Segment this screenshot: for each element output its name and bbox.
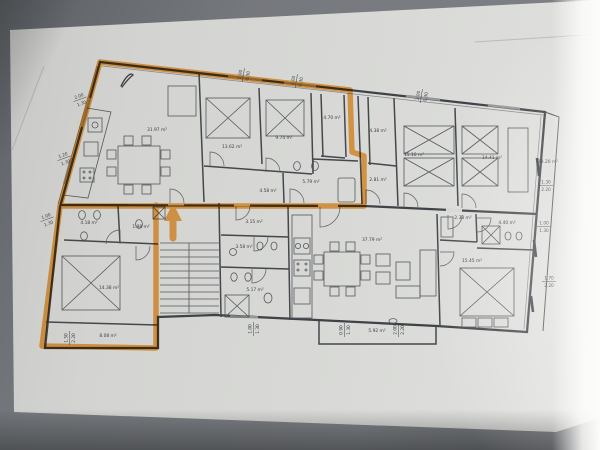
- label-room-438: 4.38 m²: [369, 128, 386, 134]
- svg-text:2.00: 2.00: [392, 325, 398, 335]
- svg-text:2.20: 2.20: [544, 283, 554, 289]
- dim-bottom-3: 0.901.30: [338, 323, 352, 337]
- label-bedroom-a: 13.62 m²: [222, 144, 242, 150]
- dim-top-3: 2.000.30: [414, 88, 430, 104]
- svg-text:1.30: 1.30: [255, 324, 261, 334]
- label-living-main: 37.79 m²: [362, 237, 382, 243]
- svg-text:1.30: 1.30: [539, 228, 549, 234]
- sofa: [420, 250, 436, 296]
- bath-fixtures: [79, 162, 522, 324]
- svg-text:1.00: 1.00: [247, 324, 253, 334]
- label-bath-440: 4.40 m²: [498, 220, 515, 226]
- svg-text:1.30: 1.30: [346, 325, 352, 335]
- label-closet-238: 2.38 m²: [454, 215, 471, 221]
- dim-bottom-1: 1.502.20: [63, 331, 77, 345]
- svg-text:2.20: 2.20: [400, 325, 406, 335]
- svg-text:0.30: 0.30: [422, 91, 430, 102]
- label-wc-358: 3.58 m²: [235, 244, 252, 250]
- photo-of-floorplan: 31.97 m² 13.62 m² 9.74 m² 4.70 m² 4.38 m…: [0, 0, 600, 450]
- dining-table: [118, 146, 160, 184]
- label-bedroom-r1: 15.16 m²: [404, 152, 424, 158]
- label-bath-418: 4.18 m²: [80, 220, 97, 226]
- label-balcony-left: 8.08 m²: [99, 333, 116, 339]
- label-balcony-mid: 5.92 m²: [368, 328, 385, 334]
- dim-right-2: 1.001.30: [537, 220, 551, 234]
- room-labels: 31.97 m² 13.62 m² 9.74 m² 4.70 m² 4.38 m…: [80, 115, 558, 339]
- label-vestibule: 3.15 m²: [245, 219, 262, 225]
- label-bath-579: 5.79 m²: [302, 179, 319, 185]
- label-wc-198: 1.98 m²: [132, 224, 149, 230]
- label-room-470: 4.70 m²: [323, 115, 340, 121]
- dim-left-3: 1.001.30: [39, 211, 57, 229]
- paper-fold-lines: [12, 34, 600, 150]
- dim-right-3: 1.702.20: [542, 275, 556, 289]
- highlighter-annotations: [42, 62, 364, 348]
- dim-right-1: 1.302.20: [539, 179, 553, 193]
- windows-layer: [64, 77, 539, 318]
- beds: [62, 98, 528, 327]
- staircase: [153, 207, 219, 313]
- label-terrace-right: 13.20 m²: [538, 159, 558, 165]
- pen-mark: [121, 74, 133, 87]
- svg-text:1.00: 1.00: [539, 220, 549, 226]
- svg-text:0.90: 0.90: [338, 325, 344, 335]
- floorplan-drawing: 31.97 m² 13.62 m² 9.74 m² 4.70 m² 4.38 m…: [0, 0, 600, 450]
- svg-text:2.20: 2.20: [541, 187, 551, 193]
- paper-sheet: 31.97 m² 13.62 m² 9.74 m² 4.70 m² 4.38 m…: [0, 0, 600, 450]
- label-living-top: 31.97 m²: [147, 127, 167, 133]
- label-room-281: 2.81 m²: [369, 177, 386, 183]
- svg-text:1.30: 1.30: [541, 179, 551, 185]
- svg-text:1.30: 1.30: [43, 219, 54, 228]
- svg-text:2.20: 2.20: [71, 333, 77, 343]
- highlight-top-outline: [100, 62, 364, 203]
- label-bedroom-b: 9.74 m²: [275, 135, 292, 141]
- label-bedroom-br: 15.45 m²: [462, 258, 482, 264]
- label-bath-517: 5.17 m²: [246, 287, 263, 293]
- label-bedroom-r2: 14.41 m²: [482, 155, 502, 161]
- svg-text:1.70: 1.70: [544, 275, 554, 281]
- dim-bottom-2: 1.001.30: [247, 322, 261, 336]
- wardrobe: [168, 86, 196, 116]
- label-bedroom-left: 14.38 m²: [99, 285, 119, 291]
- label-hall-458: 4.58 m²: [259, 188, 276, 194]
- svg-text:1.50: 1.50: [63, 333, 69, 343]
- kitchen-counter: [292, 215, 312, 318]
